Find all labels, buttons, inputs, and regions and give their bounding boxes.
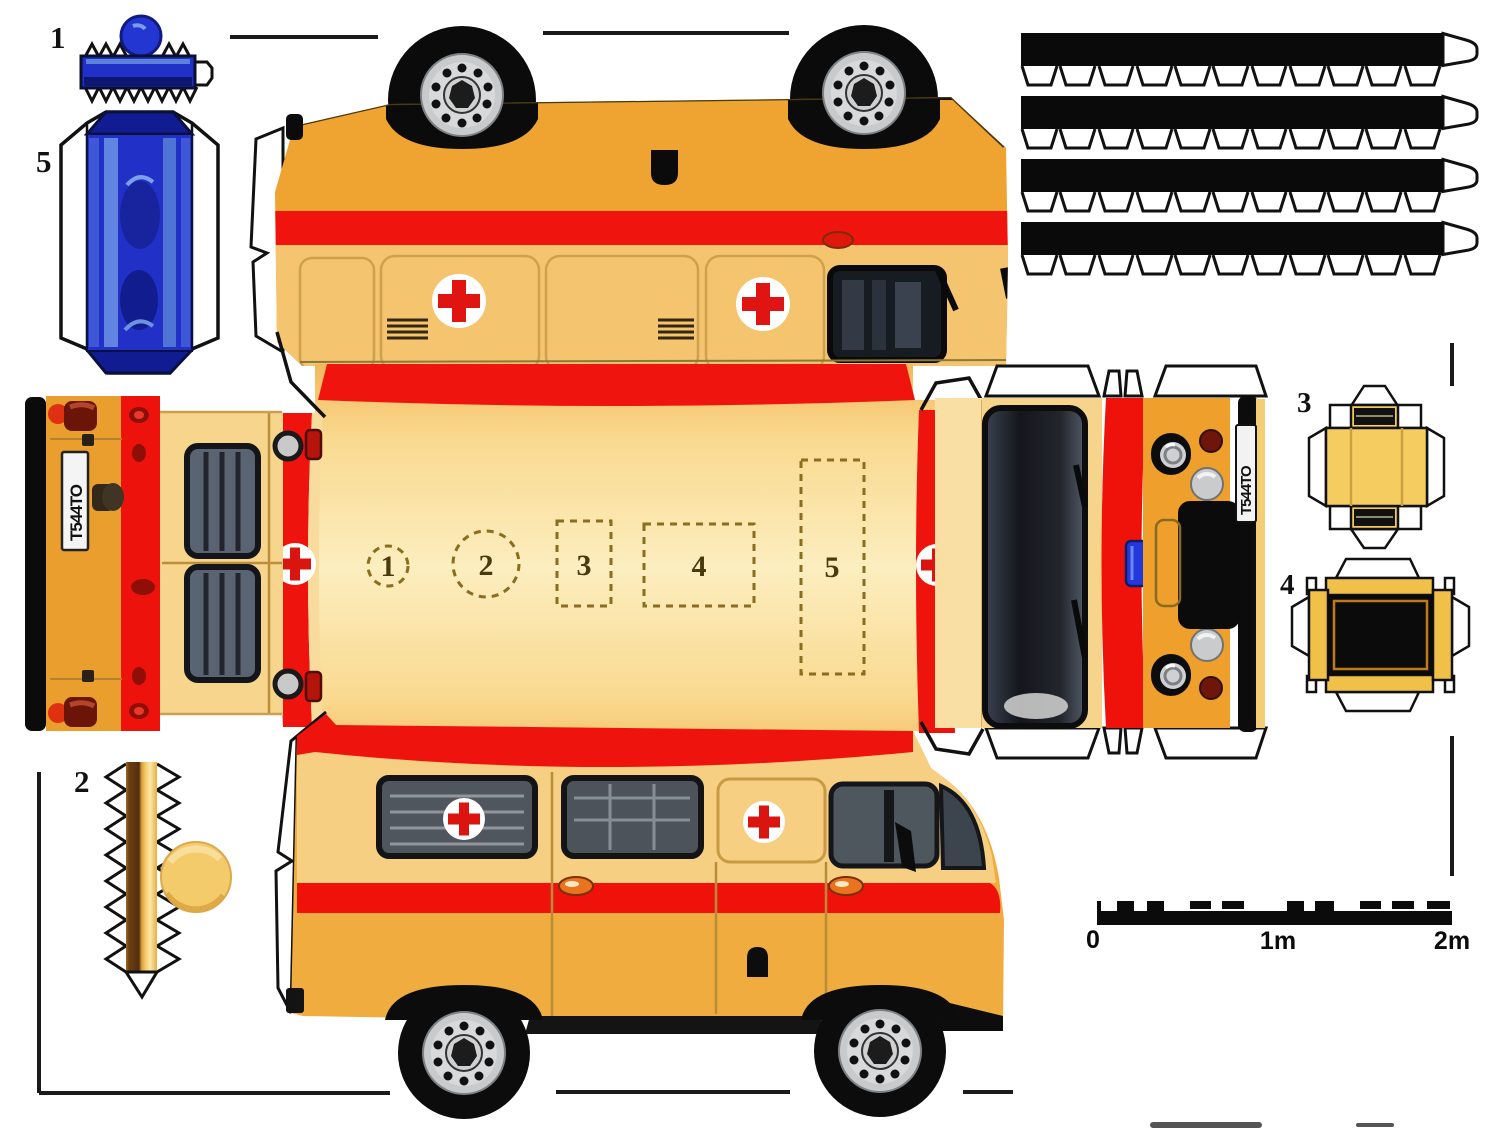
svg-text:5: 5 bbox=[36, 144, 52, 179]
svg-text:1m: 1m bbox=[1260, 927, 1296, 955]
svg-text:5: 5 bbox=[825, 551, 840, 584]
svg-text:3: 3 bbox=[1297, 387, 1312, 419]
svg-text:1: 1 bbox=[50, 20, 66, 55]
svg-text:4: 4 bbox=[692, 550, 707, 583]
svg-text:2: 2 bbox=[74, 764, 90, 799]
svg-text:4: 4 bbox=[1280, 569, 1295, 601]
svg-text:2: 2 bbox=[479, 549, 494, 582]
svg-text:2m: 2m bbox=[1434, 927, 1470, 955]
svg-text:Т544ТО: Т544ТО bbox=[67, 484, 86, 541]
svg-text:3: 3 bbox=[577, 549, 592, 582]
svg-text:Т544ТО: Т544ТО bbox=[1238, 465, 1255, 515]
svg-text:1: 1 bbox=[381, 550, 396, 583]
svg-text:0: 0 bbox=[1086, 926, 1100, 954]
